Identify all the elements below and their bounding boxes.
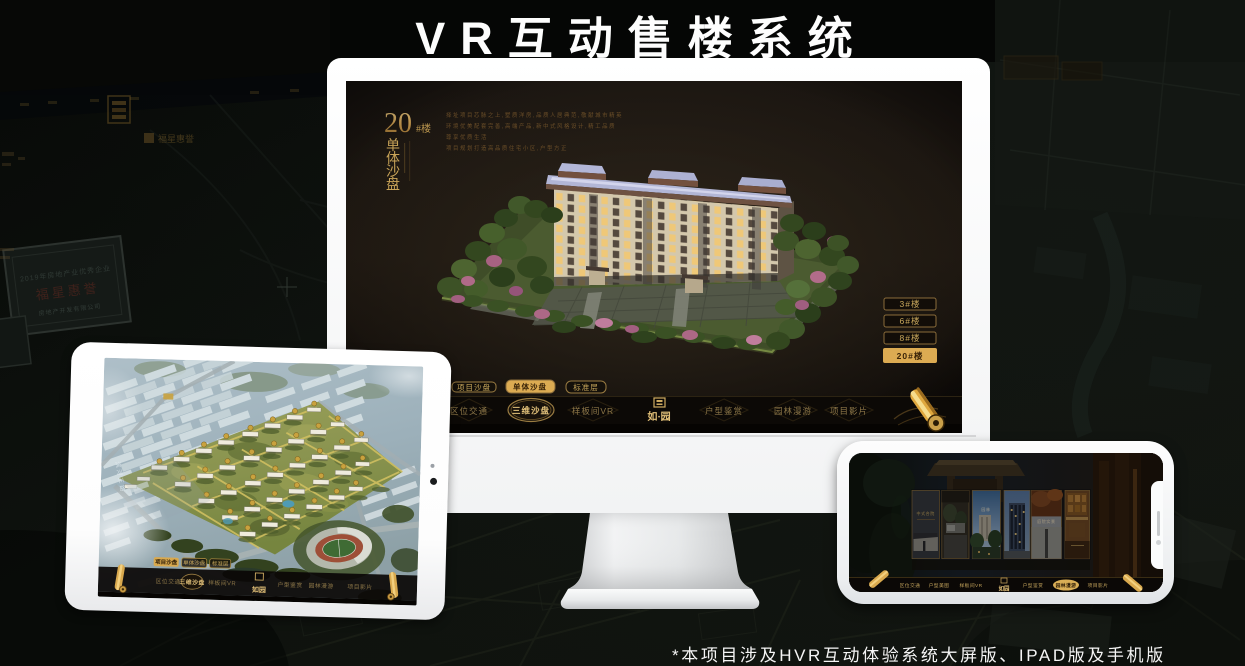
svg-text:样板间VR: 样板间VR [572, 406, 614, 416]
svg-text:区位交通: 区位交通 [450, 406, 488, 416]
svg-text:户型鉴赏: 户型鉴赏 [705, 406, 743, 416]
svg-text:户型鉴赏: 户型鉴赏 [1023, 582, 1044, 589]
svg-text:标准层: 标准层 [573, 382, 599, 392]
svg-text:园林漫游: 园林漫游 [774, 406, 812, 416]
svg-text:单体沙盘: 单体沙盘 [513, 382, 547, 392]
svg-text:户型美图: 户型美图 [929, 582, 950, 589]
svg-text:如园: 如园 [252, 585, 266, 594]
svg-text:三维沙盘: 三维沙盘 [512, 406, 550, 416]
svg-text:如园: 如园 [999, 585, 1010, 593]
svg-text:3#楼: 3#楼 [900, 299, 921, 309]
svg-text:项目影片: 项目影片 [830, 406, 868, 416]
svg-text:如·园: 如·园 [647, 410, 670, 423]
svg-text:福星惠誉: 福星惠誉 [158, 133, 194, 144]
svg-text:项目影片: 项目影片 [1088, 582, 1109, 589]
svg-text:区位交通: 区位交通 [900, 582, 921, 589]
svg-text:6#楼: 6#楼 [900, 316, 921, 326]
svg-text:8#楼: 8#楼 [900, 333, 921, 343]
svg-text:20#楼: 20#楼 [897, 351, 924, 361]
svg-text:样板间VR: 样板间VR [959, 582, 982, 589]
svg-text:园林漫游: 园林漫游 [1056, 582, 1077, 589]
svg-text:项目沙盘: 项目沙盘 [457, 382, 491, 392]
